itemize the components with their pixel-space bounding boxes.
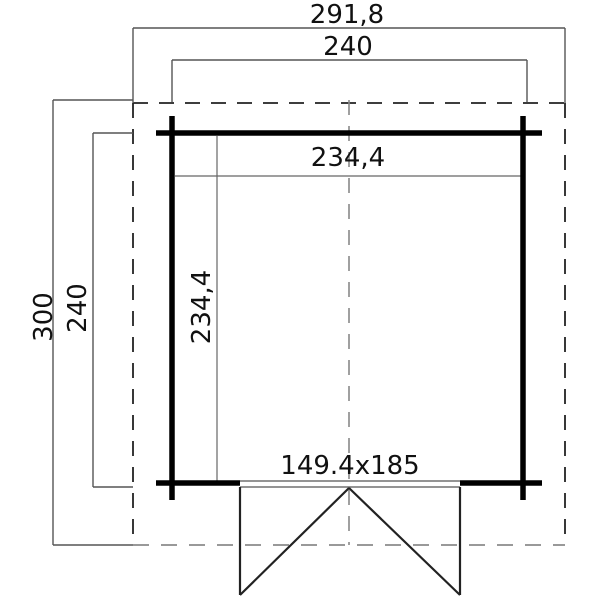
- label-overall-depth: 300: [30, 292, 58, 342]
- door-leaf-left-diagonal: [240, 488, 349, 595]
- door-threshold: [240, 481, 460, 487]
- label-door-size: 149.4x185: [280, 452, 419, 480]
- double-door: [240, 487, 460, 595]
- label-inner-width: 234,4: [311, 144, 385, 172]
- label-overall-width: 291,8: [310, 1, 384, 29]
- floor-plan-canvas: 291,8 240 300 240 234,4 234,4 149.4x185: [0, 0, 600, 600]
- door-leaf-right-diagonal: [349, 488, 460, 595]
- label-body-depth: 240: [64, 283, 92, 333]
- label-body-width: 240: [323, 33, 373, 61]
- label-inner-depth: 234,4: [188, 270, 216, 344]
- dim-body-depth: [93, 133, 133, 487]
- dim-body-width: [172, 60, 527, 102]
